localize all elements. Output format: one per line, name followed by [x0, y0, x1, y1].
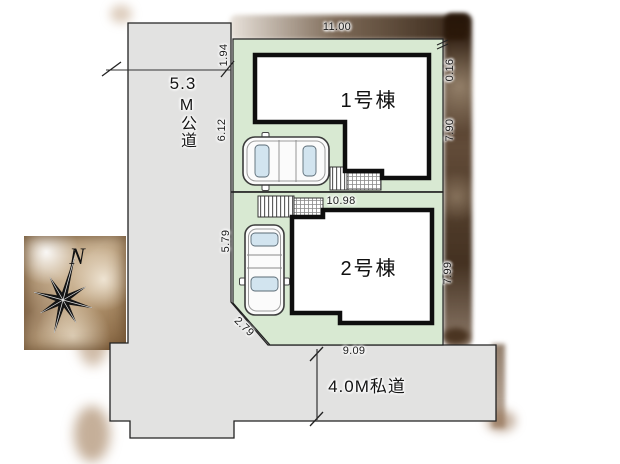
- dimension-lot1-left-upper: 1.94: [218, 37, 230, 73]
- car-2-icon: [240, 225, 290, 315]
- building-2-label: 2号棟: [329, 252, 409, 281]
- dimension-lot1-right-upper: 0.16: [444, 52, 456, 88]
- building-1-label: 1号棟: [329, 84, 409, 113]
- dimension-lot2-right: 7.99: [442, 255, 454, 291]
- entry-steps-lot2-icon: [258, 196, 294, 217]
- site-plan-canvas: { "site_plan": { "compass": { "north_lab…: [0, 0, 620, 464]
- dimension-lot2-bottom: 9.09: [334, 345, 374, 357]
- dimension-lot1-left-lower: 6.12: [216, 112, 228, 148]
- dimension-lot2-left: 5.79: [220, 223, 232, 259]
- private-road-label: 4.0M私道: [297, 372, 437, 397]
- car-1-icon: [243, 133, 329, 191]
- north-label: N: [64, 244, 90, 270]
- public-road-width-label: 5.3: [163, 74, 203, 94]
- public-road-name-label: M公道: [174, 93, 198, 153]
- dimension-lot1-right-lower: 7.90: [444, 112, 456, 148]
- dimension-lot1-top: 11.00: [317, 21, 357, 33]
- dimension-lot-boundary: 10.98: [319, 195, 363, 207]
- entry-porch-lot1-icon: [347, 173, 381, 190]
